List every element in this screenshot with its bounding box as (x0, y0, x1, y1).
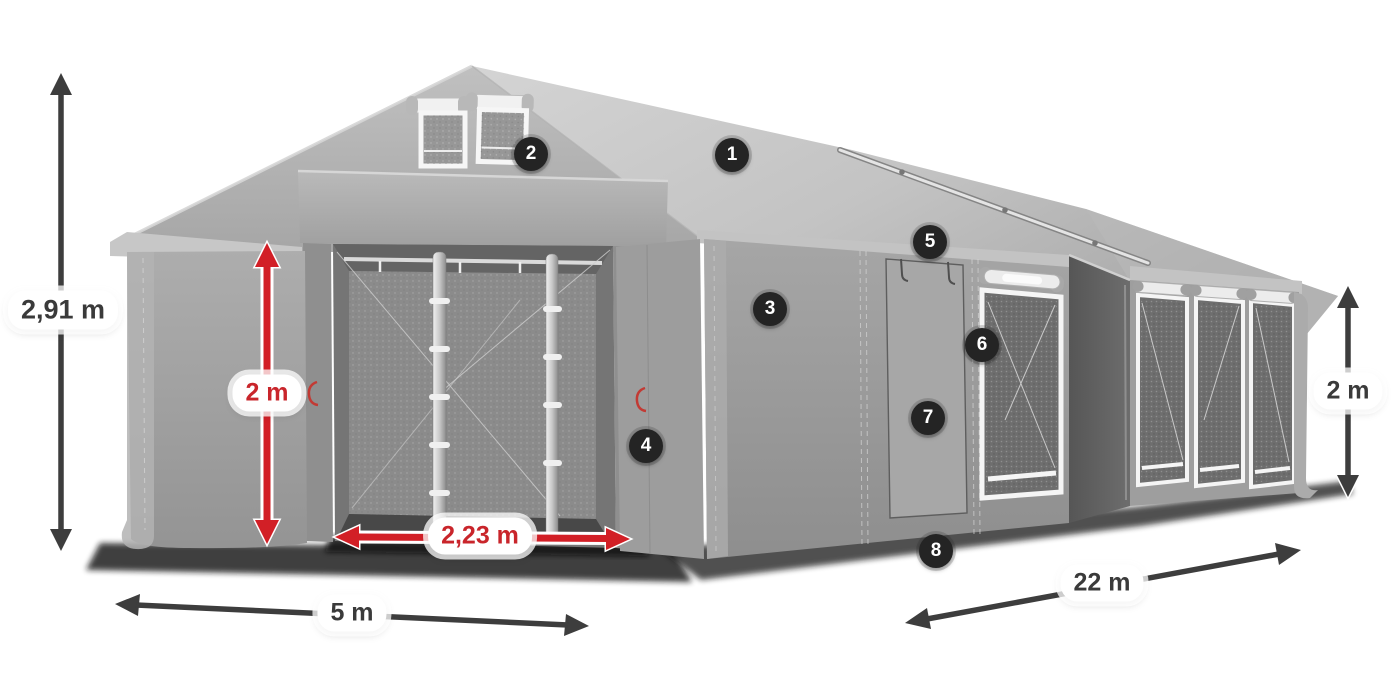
callout-badge-4[interactable]: 4 (629, 429, 663, 463)
callout-badge-5[interactable]: 5 (913, 225, 947, 259)
dimension-arrows (0, 0, 1400, 700)
callout-badge-3[interactable]: 3 (753, 292, 787, 326)
tent-dimension-figure: 2,91 m 5 m 22 m 2 m 2 m 2,23 m 1 2 3 4 5… (0, 0, 1400, 700)
callout-badge-2[interactable]: 2 (514, 137, 548, 171)
dim-label-side-length: 22 m (1061, 565, 1144, 602)
dim-label-side-height: 2 m (1313, 373, 1382, 410)
callout-badge-1[interactable]: 1 (715, 138, 749, 172)
dim-label-door-width: 2,23 m (428, 518, 532, 555)
callout-badge-7[interactable]: 7 (911, 401, 945, 435)
callout-badge-8[interactable]: 8 (919, 534, 953, 568)
dim-label-door-height: 2 m (232, 375, 301, 412)
dim-label-height-left: 2,91 m (8, 291, 118, 330)
dim-label-front-width: 5 m (317, 595, 386, 632)
callout-badge-6[interactable]: 6 (965, 328, 999, 362)
